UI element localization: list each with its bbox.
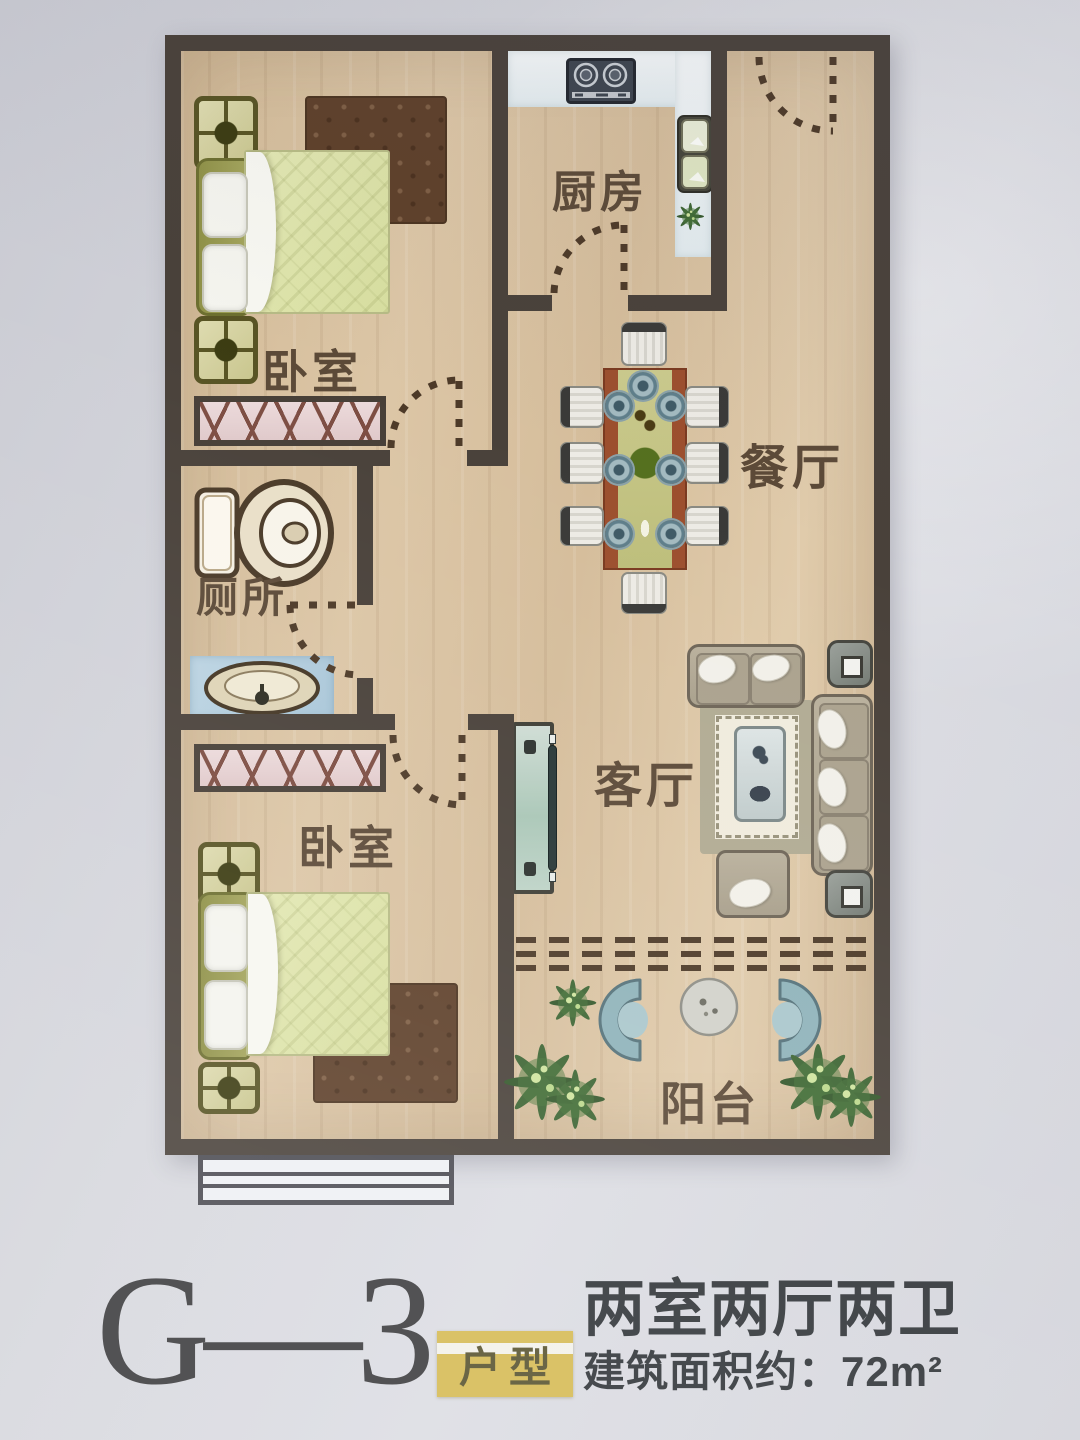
dining-chair-right-3	[685, 506, 729, 546]
balcony-label: 阳台	[660, 1068, 760, 1134]
bedroom-bottom-pillow-1	[204, 904, 248, 972]
kitchen-stove	[566, 58, 636, 104]
sofa-armchair	[716, 850, 790, 918]
living-room-label: 客厅	[594, 746, 698, 816]
dining-chair-left-3	[560, 506, 604, 546]
wall-bedroom-top-right	[492, 51, 508, 466]
bedroom-bottom-pillow-2	[204, 980, 248, 1050]
bedroom-bottom-label: 卧室	[298, 812, 398, 878]
bedroom-bottom-nightstand-2	[198, 1062, 260, 1114]
kitchen-sink	[676, 114, 714, 194]
side-table-top	[827, 640, 873, 688]
unit-tag-label: 户型	[437, 1334, 573, 1395]
unit-code: G—3	[96, 1252, 429, 1410]
bedroom-top-pillow-1	[202, 172, 248, 238]
bedroom-top-pillow-2	[202, 244, 248, 312]
exterior-window-ledge	[198, 1155, 454, 1205]
bedroom-top-label: 卧室	[262, 336, 362, 402]
side-table-bottom	[825, 870, 873, 918]
toilet-label: 厕所	[196, 564, 288, 625]
dining-plate	[629, 372, 657, 400]
unit-tag-badge: 户型	[437, 1331, 573, 1397]
dining-plate	[605, 520, 633, 548]
wall-bedroom-top-bottom	[181, 450, 390, 466]
layout-description: 两室两厅两卫	[583, 1258, 961, 1348]
bathroom-sink	[200, 660, 324, 716]
dining-plate	[657, 456, 685, 484]
wall-toilet-right	[357, 466, 373, 605]
wall-bedroom-top-bottom	[467, 450, 508, 466]
dining-plate	[657, 392, 685, 420]
photo-of-floor-plan: { "floor_plan": { "rooms": [ {"id": "bed…	[0, 0, 1080, 1440]
dining-plate	[657, 520, 685, 548]
sofa-three-seat	[811, 694, 873, 876]
bedroom-bottom-bed	[246, 892, 390, 1056]
wall-kitchen-bottom	[508, 295, 552, 311]
wall-toilet-bottom	[468, 714, 514, 730]
dining-chair-right-1	[685, 386, 729, 428]
sofa-throw-pillow	[726, 874, 774, 911]
area-description: 建筑面积约：72m²	[583, 1338, 943, 1399]
tv-stand-knob	[524, 740, 536, 754]
dining-chair-left-1	[560, 386, 604, 428]
wall-living-left	[498, 730, 514, 1139]
wall-toilet-bottom	[181, 714, 395, 730]
bedroom-top-bed	[244, 150, 390, 314]
dining-chair-right-2	[685, 442, 729, 484]
dining-room-label: 餐厅	[740, 428, 844, 498]
dining-chair-top	[621, 322, 667, 366]
sofa-loveseat	[687, 644, 805, 708]
dining-chair-bottom	[621, 572, 667, 614]
tv-screen	[549, 746, 556, 870]
dining-plate	[605, 392, 633, 420]
kitchen-label: 厨房	[552, 156, 648, 220]
tv-stand	[512, 722, 554, 894]
bedroom-top-nightstand-2	[194, 316, 258, 384]
dining-plate	[605, 456, 633, 484]
coffee-table	[734, 726, 786, 822]
tv-stand-knob	[524, 862, 536, 876]
wall-kitchen-right	[711, 51, 727, 311]
bedroom-top-wardrobe	[194, 396, 386, 446]
bedroom-bottom-wardrobe	[194, 744, 386, 792]
dining-chair-left-2	[560, 442, 604, 484]
